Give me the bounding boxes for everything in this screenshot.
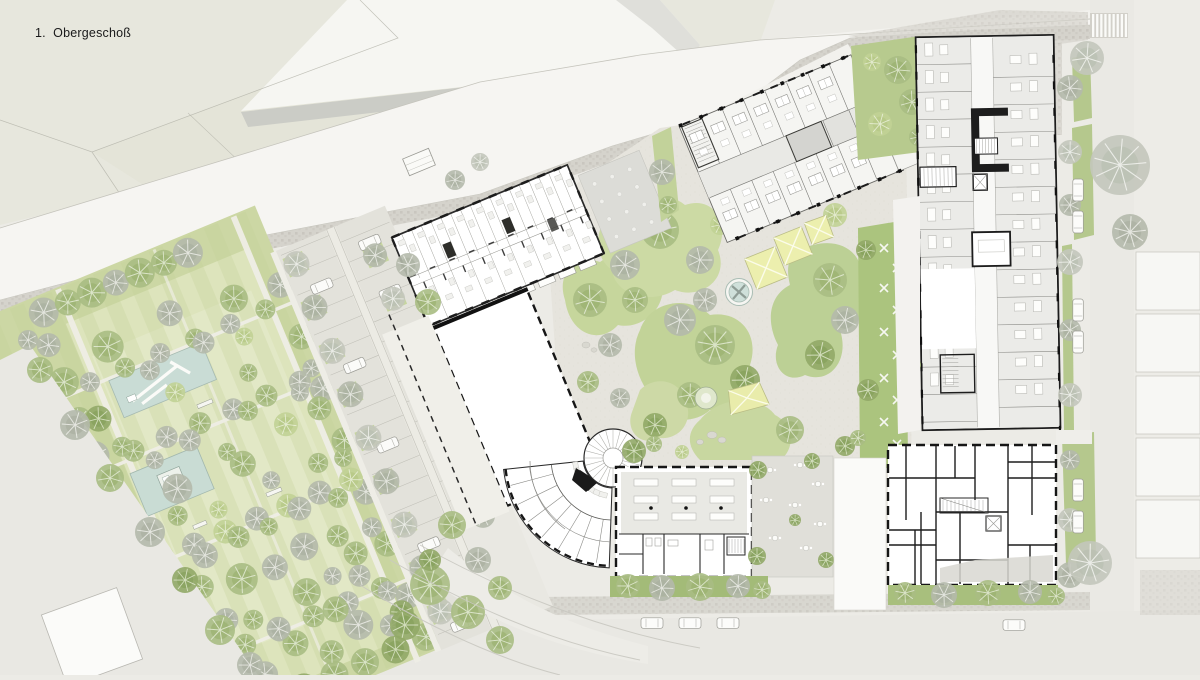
svg-text:1. Obergeschoß: 1. Obergeschoß (35, 26, 131, 40)
